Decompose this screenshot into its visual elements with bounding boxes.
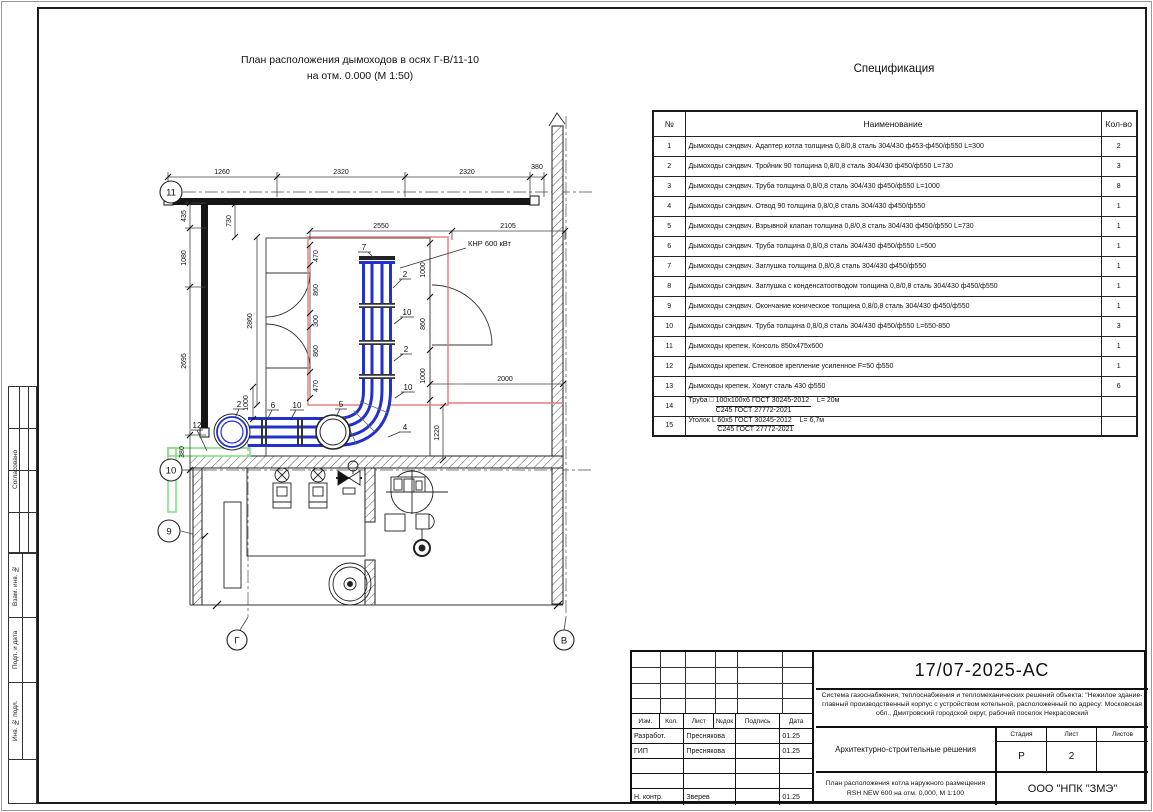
col-kol: Кол. [660, 714, 685, 728]
axis-v: В [561, 636, 567, 647]
dim-innertop-1: 2105 [500, 223, 516, 230]
sig-row: Разработ. Преснякова 01.25 [632, 729, 812, 744]
dim-top-3: 380 [531, 164, 543, 171]
section-title: Архитектурно-строительные решения [816, 728, 997, 771]
equipment [224, 461, 448, 605]
callout-6: 6 [271, 401, 276, 410]
spec-row: 7Дымоходы сэндвич. Заглушка толщина 0,8/… [653, 256, 1137, 276]
spec-row: 4Дымоходы сэндвич. Отвод 90 толщина 0,8/… [653, 196, 1137, 216]
dim-left-3: 380 [179, 446, 186, 458]
boiler-outline [308, 237, 563, 405]
dim-730: 730 [226, 215, 233, 227]
sig-name: Зверев [684, 789, 735, 805]
sig-date: 01.25 [780, 744, 812, 758]
spec-row: 12Дымоходы крепеж. Стеновое крепление ус… [653, 356, 1137, 376]
dim-ir-0: 1000 [420, 262, 427, 278]
callout-5: 5 [339, 400, 344, 409]
sig-date: 01.25 [780, 789, 812, 805]
spec-row-name: Дымоходы сэндвич. Труба толщина 0,8/0,8 … [685, 176, 1101, 196]
sig-sign [736, 744, 781, 758]
spec-row: 15Уголок L 60х5 ГОСТ 30245-2012С245 ГОСТ… [653, 416, 1137, 436]
sig-role: ГИП [632, 744, 684, 758]
axis-11: 11 [166, 188, 176, 199]
axis-g: Г [234, 636, 239, 647]
callout-10b: 10 [404, 383, 413, 392]
spec-row: 10Дымоходы сэндвич. Труба толщина 0,8/0,… [653, 316, 1137, 336]
sig-name: Преснякова [684, 729, 735, 743]
drawing-sheet: Согласовано Взам. инв. № Подп. и дата Ин… [0, 0, 1153, 812]
spec-row-name: Дымоходы сэндвич. Взрывной клапан толщин… [685, 216, 1101, 236]
stamp-empty [8, 759, 37, 804]
spec-col-qty: Кол-во [1101, 111, 1137, 136]
sig-role [632, 759, 684, 773]
spec-row: 8Дымоходы сэндвич. Заглушка с конденсато… [653, 276, 1137, 296]
callout-4: 4 [403, 423, 408, 432]
stamp-label: Подп. и дата [9, 618, 22, 682]
dim-left-1: 1080 [181, 250, 188, 266]
title-block-left: Изм. Кол. Лист №док Подпись Дата Разрабо… [632, 652, 814, 801]
dim-1220: 1220 [434, 425, 441, 441]
callout-12: 12 [193, 421, 202, 430]
spec-row-name: Дымоходы крепеж. Стеновое крепление усил… [685, 356, 1101, 376]
stamp-soglasovano: Согласовано [8, 386, 37, 553]
spec-row-name: Дымоходы сэндвич. Окончание коническое т… [685, 296, 1101, 316]
sig-name [684, 774, 735, 788]
spec-row: 3Дымоходы сэндвич. Труба толщина 0,8/0,8… [653, 176, 1137, 196]
col-data: Дата [780, 714, 812, 728]
company-name: ООО "НПК "ЗМЭ" [997, 773, 1148, 805]
spec-row-name: Дымоходы сэндвич. Отвод 90 толщина 0,8/0… [685, 196, 1101, 216]
spec-row-name: Дымоходы сэндвич. Тройник 90 толщина 0,8… [685, 156, 1101, 176]
dim-2860: 2860 [247, 313, 254, 329]
title-block: Изм. Кол. Лист №док Подпись Дата Разрабо… [630, 650, 1146, 803]
sig-row: Н. контр. Зверев 01.25 [632, 789, 812, 805]
sheet-title: План расположения котла наружного размещ… [816, 773, 997, 805]
revision-grid [632, 652, 812, 714]
sig-role: Н. контр. [632, 789, 684, 805]
sig-role [632, 774, 684, 788]
col-izm: Изм. [632, 714, 660, 728]
callout-10c: 10 [293, 401, 302, 410]
stamp-podp: Подп. и дата [8, 617, 37, 683]
spec-row: 14Труба □ 100х100х6 ГОСТ 30245-2012С245 … [653, 396, 1137, 416]
col-list: Лист [684, 714, 714, 728]
signature-header: Изм. Кол. Лист №док Подпись Дата [632, 714, 812, 729]
dim-top-0: 1260 [214, 169, 230, 176]
stamp-vzam: Взам. инв. № [8, 553, 37, 618]
sig-sign [736, 789, 781, 805]
chimney-pipe [214, 256, 395, 450]
project-description: Система газоснабжения, теплоснабжения и … [816, 690, 1148, 728]
boiler-label: КНР 600 кВт [468, 239, 512, 248]
specification-table: № Наименование Кол-во 1Дымоходы сэндвич.… [652, 110, 1136, 437]
plan-drawing: 1260 2320 2320 380 2550 2105 435 1080 26… [38, 8, 650, 660]
title-block-right: 17/07-2025-АС Система газоснабжения, теп… [816, 652, 1148, 801]
spec-row-name: Дымоходы сэндвич. Адаптер котла толщина … [685, 136, 1101, 156]
sig-sign [736, 759, 781, 773]
dim-left-0: 435 [181, 210, 188, 222]
dim-il-4: 470 [313, 380, 320, 392]
spec-row-name: Дымоходы сэндвич. Заглушка толщина 0,8/0… [685, 256, 1101, 276]
callout-2b: 2 [404, 345, 409, 354]
sig-name: Преснякова [684, 744, 735, 758]
pump-icon [309, 468, 327, 508]
dim-ir-1: 860 [420, 318, 427, 330]
specification-title: Спецификация [652, 63, 1136, 75]
dim-ir-2: 1000 [420, 368, 427, 384]
spec-row: 9Дымоходы сэндвич. Окончание коническое … [653, 296, 1137, 316]
sig-row: ГИП Преснякова 01.25 [632, 744, 812, 759]
spec-row: 13Дымоходы крепеж. Хомут сталь 430 ф5506 [653, 376, 1137, 396]
actuator-valve-icon [414, 514, 434, 556]
sig-date [780, 759, 812, 773]
spec-col-name: Наименование [685, 111, 1101, 136]
sig-role: Разработ. [632, 729, 684, 743]
stage-value: Р [997, 742, 1047, 771]
dim-2000: 2000 [497, 376, 513, 383]
sig-row [632, 774, 812, 789]
sig-sign [736, 774, 781, 788]
spec-row-name: Труба □ 100х100х6 ГОСТ 30245-2012С245 ГО… [685, 396, 1101, 416]
axis-9: 9 [166, 527, 171, 538]
stamp-label: Инв. № подл. [9, 683, 22, 759]
listov-label: Листов [1097, 728, 1148, 742]
spec-row-name: Уголок L 60х5 ГОСТ 30245-2012С245 ГОСТ 2… [685, 416, 1101, 436]
stamp-inv: Инв. № подл. [8, 682, 37, 760]
spec-row: 6Дымоходы сэндвич. Труба толщина 0,8/0,8… [653, 236, 1137, 256]
pump-icon [273, 468, 291, 508]
spec-row-name: Дымоходы крепеж. Консоль 850х475х600 [685, 336, 1101, 356]
sig-sign [736, 729, 781, 743]
spec-row: 5Дымоходы сэндвич. Взрывной клапан толщи… [653, 216, 1137, 236]
spec-row-name: Дымоходы крепеж. Хомут сталь 430 ф550 [685, 376, 1101, 396]
stage-table: Стадия Лист Листов Р 2 [997, 728, 1148, 771]
dim-il-0: 470 [313, 250, 320, 262]
burner-icon [386, 470, 448, 514]
spec-row-name: Дымоходы сэндвич. Заглушка с конденсатоо… [685, 276, 1101, 296]
callout-2a: 2 [403, 270, 408, 279]
dim-left-2: 2695 [181, 353, 188, 369]
sig-name [684, 759, 735, 773]
stamp-label: Взам. инв. № [9, 554, 22, 617]
spec-row: 2Дымоходы сэндвич. Тройник 90 толщина 0,… [653, 156, 1137, 176]
spec-row-name: Дымоходы сэндвич. Труба толщина 0,8/0,8 … [685, 316, 1101, 336]
dim-1000: 1000 [243, 395, 250, 411]
sig-row [632, 759, 812, 774]
dim-il-2: 300 [313, 315, 320, 327]
sig-date: 01.25 [780, 729, 812, 743]
spec-row: 11Дымоходы крепеж. Консоль 850х475х6001 [653, 336, 1137, 356]
callout-2c: 2 [237, 400, 242, 409]
dim-top-1: 2320 [333, 169, 349, 176]
list-value: 2 [1047, 742, 1097, 771]
spec-row-name: Дымоходы сэндвич. Труба толщина 0,8/0,8 … [685, 236, 1101, 256]
stage-label: Стадия [997, 728, 1047, 742]
col-ndok: №док [714, 714, 736, 728]
stamp-label: Согласовано [9, 387, 22, 552]
list-label: Лист [1047, 728, 1097, 742]
spec-header-row: № Наименование Кол-во [653, 111, 1137, 136]
dim-top-2: 2320 [459, 169, 475, 176]
spec-row: 1Дымоходы сэндвич. Адаптер котла толщина… [653, 136, 1137, 156]
listov-value [1097, 742, 1148, 771]
document-number: 17/07-2025-АС [816, 652, 1148, 690]
dim-il-1: 860 [313, 284, 320, 296]
dim-innertop-0: 2550 [373, 223, 389, 230]
spec-col-num: № [653, 111, 685, 136]
col-podpis: Подпись [736, 714, 781, 728]
callout-7: 7 [362, 243, 367, 252]
axis-10: 10 [166, 466, 177, 477]
sig-date [780, 774, 812, 788]
callout-10a: 10 [403, 308, 412, 317]
dim-il-3: 860 [313, 345, 320, 357]
